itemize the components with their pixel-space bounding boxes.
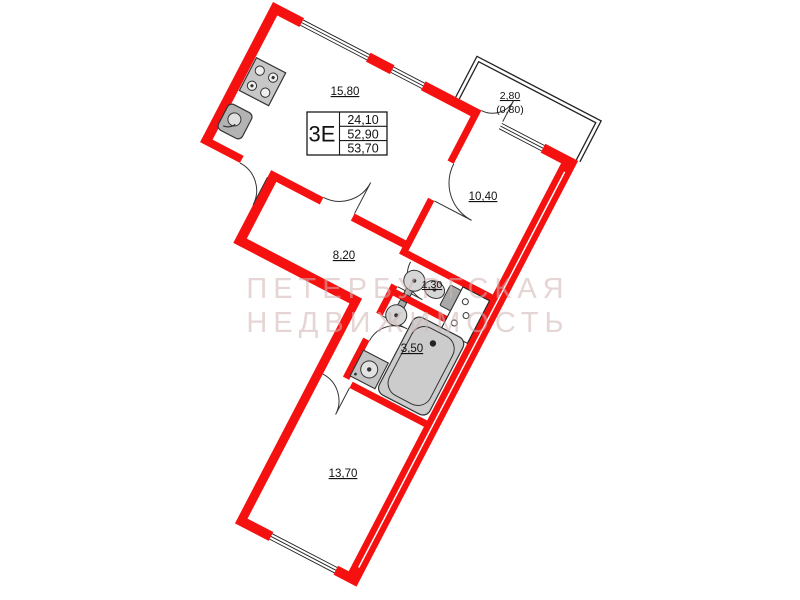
window-bottom-room xyxy=(270,534,338,573)
floor-plan-drawing: ПЕТЕРБУРГСКАЯ НЕДВИЖИМОСТЬ 15,80 2,80 (0… xyxy=(0,0,800,600)
label-kitchen-living-area: 15,80 xyxy=(331,86,360,98)
label-balcony-area-coeff: (0,80) xyxy=(496,104,523,116)
window-kitchen-2 xyxy=(391,67,425,88)
title-block-row-1: 24,10 xyxy=(347,113,378,127)
label-bathroom-area: 3,50 xyxy=(401,343,423,355)
floor-plan-page: ПЕТЕРБУРГСКАЯ НЕДВИЖИМОСТЬ 15,80 2,80 (0… xyxy=(0,0,800,600)
door-kitchen xyxy=(323,166,370,213)
label-balcony-area: 2,80 xyxy=(500,90,521,102)
title-block-type: 3Е xyxy=(309,122,336,147)
title-block-row-2: 52,90 xyxy=(347,127,378,141)
window-kitchen-1 xyxy=(300,20,369,60)
title-block: 3Е 24,10 52,90 53,70 xyxy=(307,112,387,156)
label-hallway-area: 8,20 xyxy=(333,250,355,262)
label-room-bottom-area: 13,70 xyxy=(329,468,358,480)
title-block-row-3: 53,70 xyxy=(347,142,378,156)
watermark-line-2: НЕДВИЖИМОСТЬ xyxy=(246,307,569,339)
label-wc-area: 1,30 xyxy=(422,279,443,291)
watermark-line-1: ПЕТЕРБУРГСКАЯ xyxy=(246,273,569,305)
window-balcony xyxy=(499,123,544,150)
label-room-right-area: 10,40 xyxy=(469,191,498,203)
